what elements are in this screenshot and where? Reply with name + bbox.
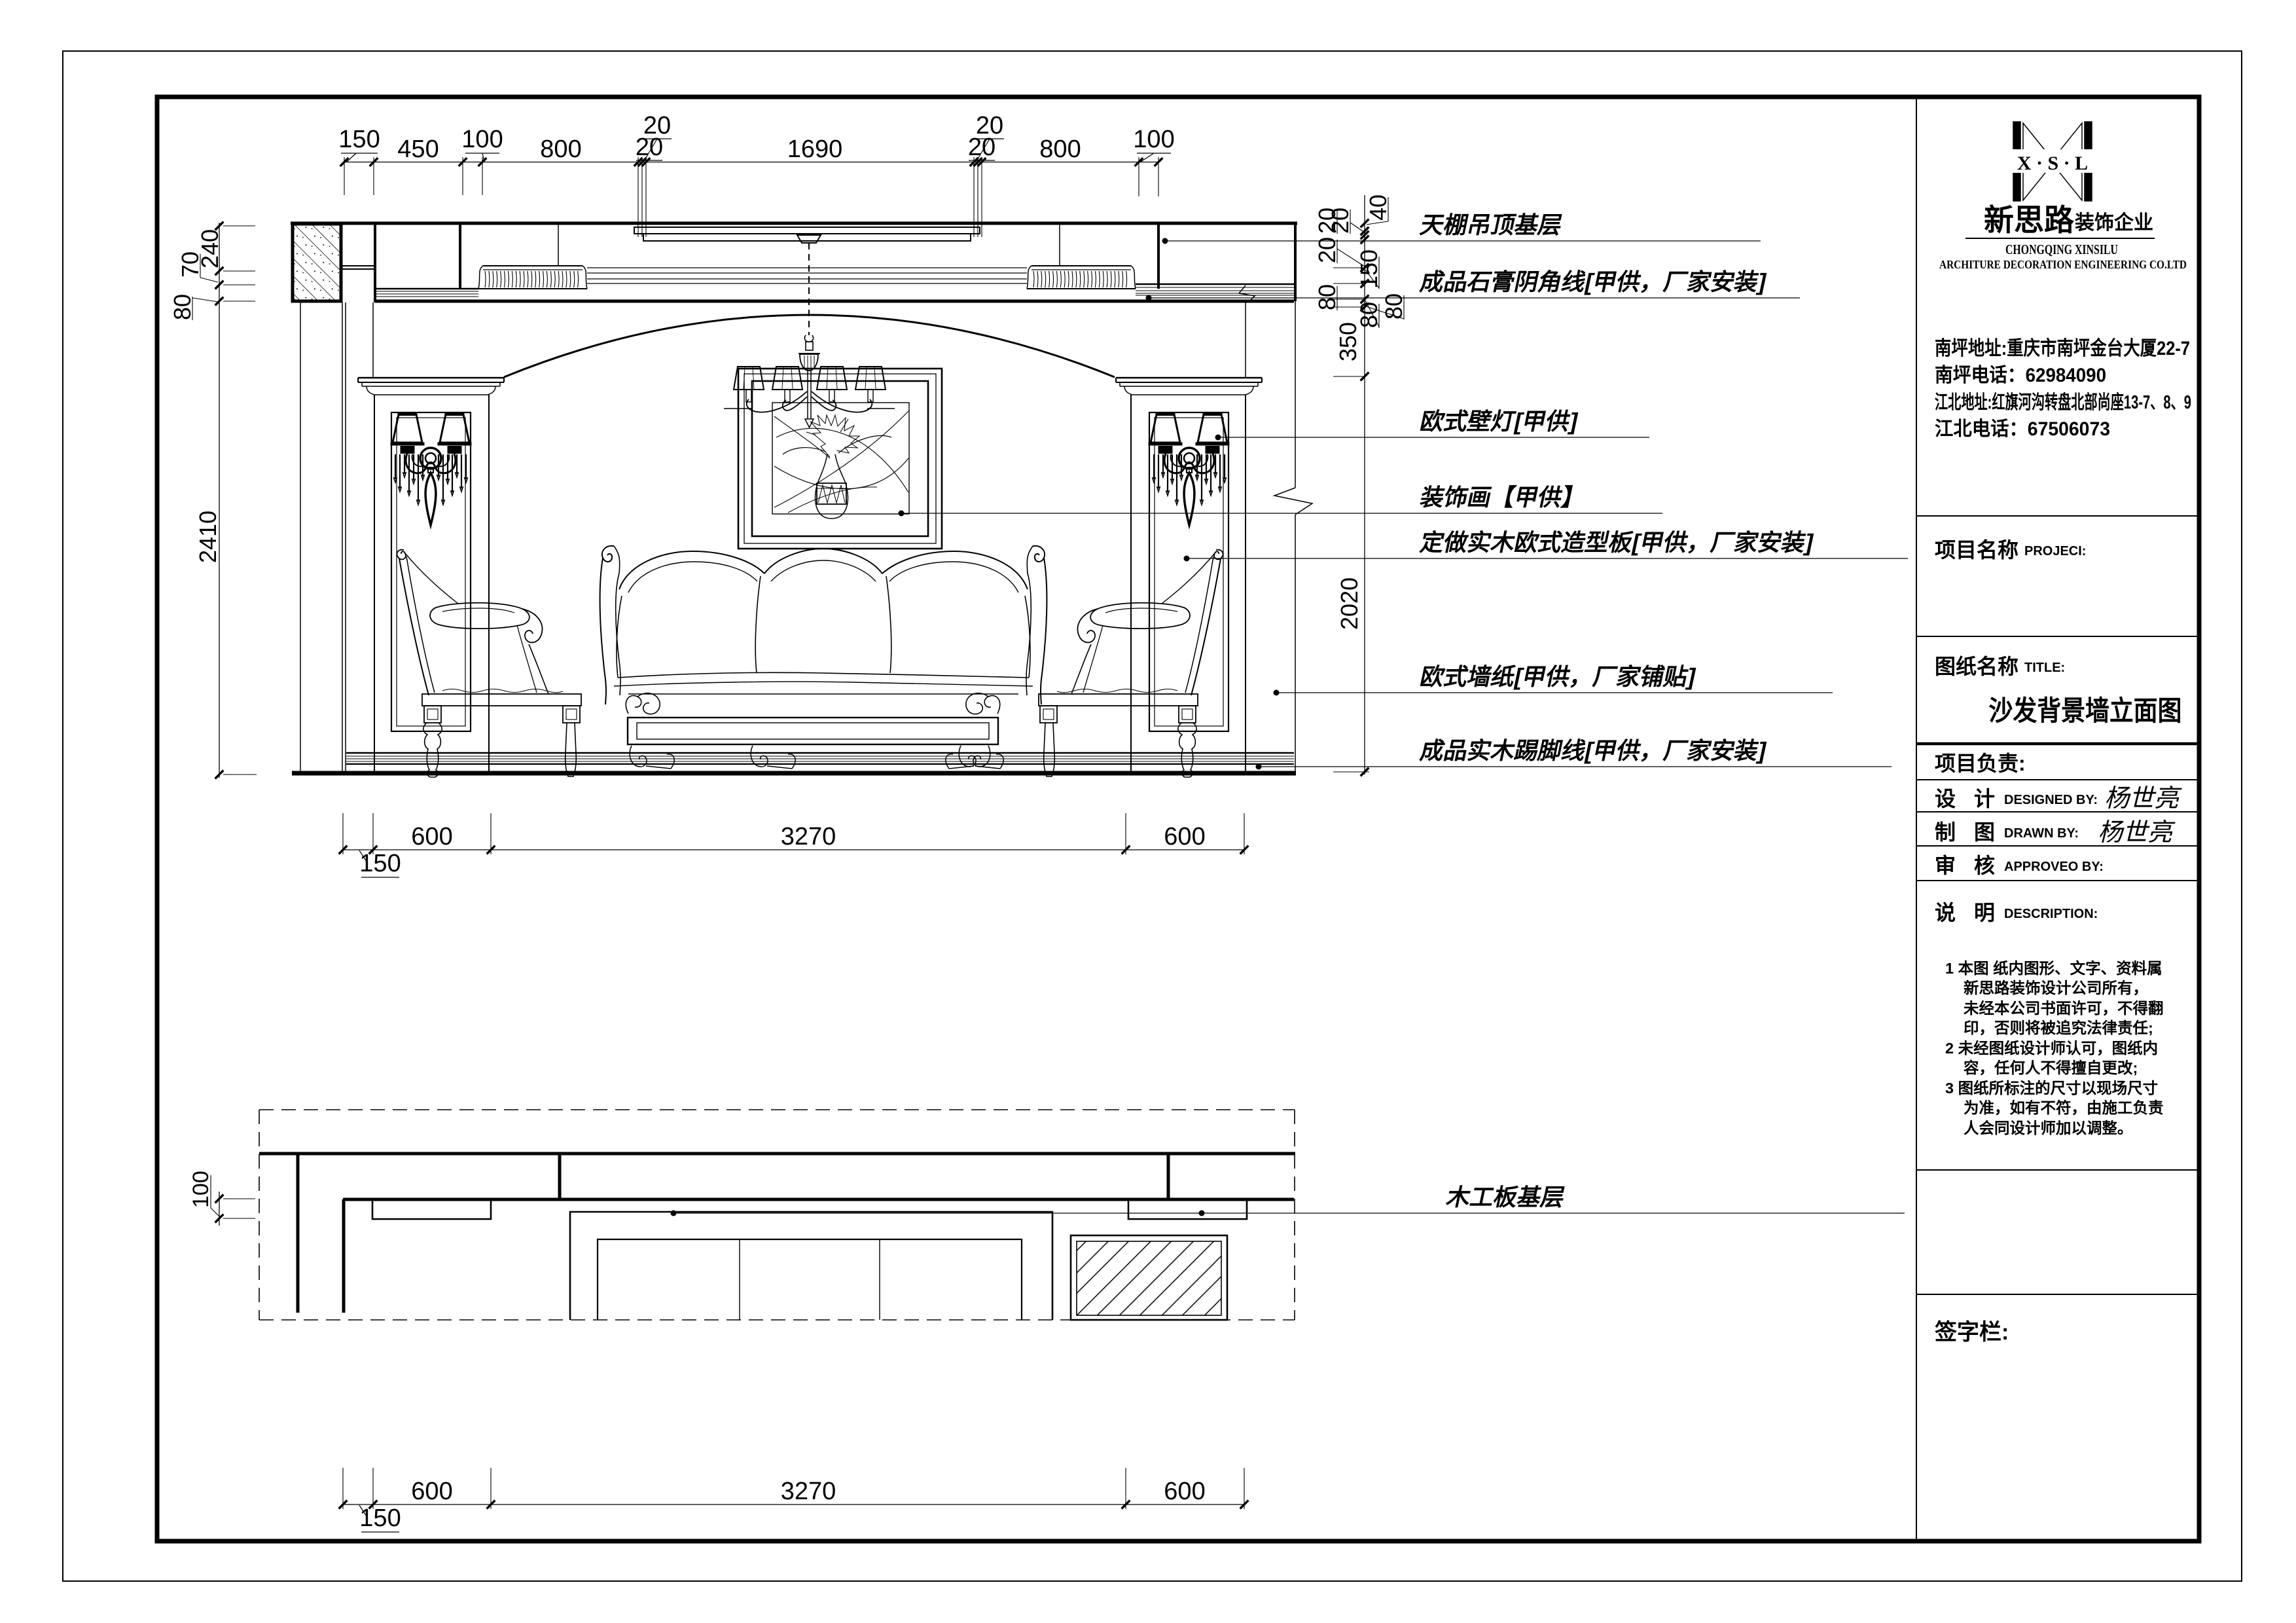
svg-text:2 未经图纸设计师认可，图纸内: 2 未经图纸设计师认可，图纸内 [1945, 1039, 2158, 1057]
svg-text:150: 150 [359, 850, 401, 877]
svg-text:X · S · L: X · S · L [2017, 153, 2088, 174]
svg-text:70: 70 [177, 251, 204, 278]
svg-text:核: 核 [1974, 854, 1995, 877]
svg-text:江北电话：67506073: 江北电话：67506073 [1935, 418, 2110, 440]
svg-text:3270: 3270 [781, 1478, 836, 1505]
svg-text:签字栏:: 签字栏: [1935, 1320, 2009, 1345]
svg-text:未经本公司书面许可，不得翻: 未经本公司书面许可，不得翻 [1964, 999, 2164, 1017]
svg-text:450: 450 [397, 136, 439, 163]
svg-text:成品实木踢脚线[甲供，厂家安装]: 成品实木踢脚线[甲供，厂家安装] [1418, 737, 1768, 764]
svg-text:欧式壁灯[甲供]: 欧式壁灯[甲供] [1418, 408, 1581, 435]
svg-text:南坪地址:重庆市南坪金台大厦22-7: 南坪地址:重庆市南坪金台大厦22-7 [1935, 337, 2190, 359]
svg-text:DESCRIPTION:: DESCRIPTION: [2004, 907, 2098, 921]
svg-text:600: 600 [411, 823, 452, 850]
svg-text:ARCHITURE DECORATION ENGINEERI: ARCHITURE DECORATION ENGINEERING CO.LTD [1939, 258, 2187, 271]
svg-text:80: 80 [169, 294, 196, 320]
svg-text:新思路: 新思路 [1984, 203, 2075, 237]
svg-text:设: 设 [1935, 787, 1956, 811]
svg-text:20: 20 [636, 134, 663, 161]
svg-text:定做实木欧式造型板[甲供，厂家安装]: 定做实木欧式造型板[甲供，厂家安装] [1418, 529, 1816, 556]
svg-text:80: 80 [1314, 284, 1340, 310]
svg-text:项目负责:: 项目负责: [1935, 752, 2026, 775]
svg-text:DRAWN BY:: DRAWN BY: [2004, 826, 2079, 841]
svg-text:PROJECI:: PROJECI: [2024, 544, 2086, 558]
svg-text:欧式墙纸[甲供，厂家铺贴]: 欧式墙纸[甲供，厂家铺贴] [1418, 663, 1698, 690]
svg-text:3270: 3270 [781, 823, 836, 850]
svg-text:天棚吊顶基层: 天棚吊顶基层 [1418, 211, 1565, 238]
svg-text:TITLE:: TITLE: [2024, 661, 2065, 675]
svg-text:DESIGNED BY:: DESIGNED BY: [2004, 793, 2098, 807]
svg-text:800: 800 [540, 136, 581, 163]
svg-text:图: 图 [1974, 820, 1995, 844]
svg-text:项目名称: 项目名称 [1935, 538, 2018, 562]
svg-text:审: 审 [1935, 854, 1956, 877]
svg-text:150: 150 [359, 1504, 401, 1532]
svg-text:明: 明 [1974, 901, 1995, 924]
svg-text:说: 说 [1935, 901, 1956, 924]
svg-text:木工板基层: 木工板基层 [1444, 1184, 1568, 1211]
svg-text:装饰画【甲供】: 装饰画【甲供】 [1418, 484, 1588, 511]
svg-text:图纸名称: 图纸名称 [1935, 655, 2018, 678]
svg-text:100: 100 [461, 126, 503, 153]
svg-text:40: 40 [1365, 194, 1391, 221]
svg-text:100: 100 [1133, 126, 1174, 153]
svg-text:南坪电话：62984090: 南坪电话：62984090 [1935, 365, 2106, 386]
svg-text:APPROVEO BY:: APPROVEO BY: [2004, 860, 2104, 874]
svg-text:600: 600 [1164, 823, 1205, 850]
svg-text:江北地址:红旗河沟转盘北部尚座13-7、8、9: 江北地址:红旗河沟转盘北部尚座13-7、8、9 [1935, 391, 2191, 413]
svg-text:350: 350 [1335, 322, 1361, 361]
svg-text:杨世亮: 杨世亮 [2103, 785, 2185, 812]
svg-text:容，任何人不得擅自更改;: 容，任何人不得擅自更改; [1964, 1059, 2138, 1076]
svg-text:100: 100 [188, 1171, 213, 1208]
svg-text:为准，如有不符，由施工负责: 为准，如有不符，由施工负责 [1964, 1099, 2164, 1116]
svg-text:人会同设计师加以调整。: 人会同设计师加以调整。 [1964, 1119, 2133, 1137]
svg-text:制: 制 [1935, 820, 1956, 844]
svg-text:800: 800 [1039, 136, 1081, 163]
svg-text:20: 20 [1327, 208, 1354, 234]
svg-text:600: 600 [411, 1478, 452, 1505]
svg-text:装饰企业: 装饰企业 [2075, 211, 2153, 234]
svg-text:1 本图 纸内图形、文字、资料属: 1 本图 纸内图形、文字、资料属 [1945, 959, 2162, 977]
svg-text:600: 600 [1164, 1478, 1205, 1505]
svg-text:1690: 1690 [787, 136, 843, 163]
svg-text:杨世亮: 杨世亮 [2096, 819, 2178, 847]
svg-text:计: 计 [1974, 787, 1995, 811]
svg-text:新思路装饰设计公司所有，: 新思路装饰设计公司所有， [1964, 979, 2148, 996]
svg-text:150: 150 [1355, 249, 1382, 289]
svg-text:150: 150 [338, 126, 380, 153]
svg-text:CHONGQING XINSILU: CHONGQING XINSILU [2005, 242, 2118, 257]
svg-text:20: 20 [968, 134, 996, 161]
svg-text:印，否则将被追究法律责任;: 印，否则将被追究法律责任; [1964, 1019, 2153, 1036]
svg-text:3 图纸所标注的尺寸以现场尺寸: 3 图纸所标注的尺寸以现场尺寸 [1945, 1079, 2158, 1097]
svg-text:成品石膏阴角线[甲供，厂家安装]: 成品石膏阴角线[甲供，厂家安装] [1418, 268, 1768, 295]
svg-text:沙发背景墙立面图: 沙发背景墙立面图 [1989, 695, 2182, 726]
svg-text:2410: 2410 [194, 511, 221, 563]
svg-text:2020: 2020 [1336, 577, 1363, 630]
